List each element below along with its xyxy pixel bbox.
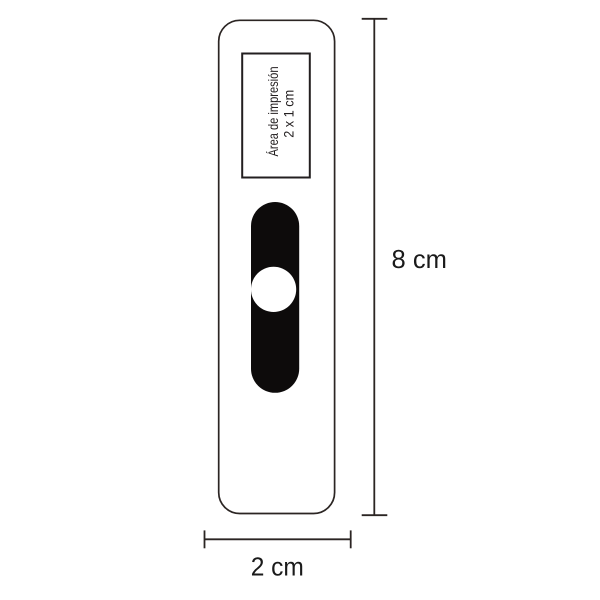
svg-text:2 x 1 cm: 2 x 1 cm — [281, 90, 297, 138]
svg-text:8 cm: 8 cm — [392, 244, 447, 274]
svg-text:2 cm: 2 cm — [251, 552, 304, 582]
svg-text:Área de impresión: Área de impresión — [265, 67, 281, 157]
